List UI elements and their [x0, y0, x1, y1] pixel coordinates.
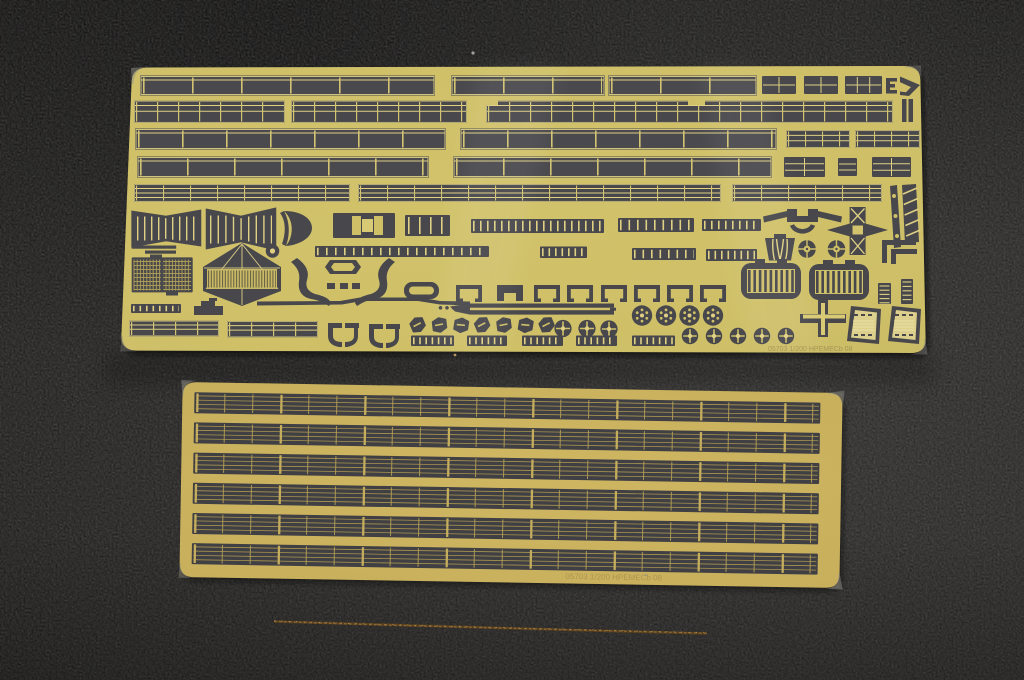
- svg-text:05703 1/200 HPEMECb 08: 05703 1/200 HPEMECb 08: [565, 572, 662, 583]
